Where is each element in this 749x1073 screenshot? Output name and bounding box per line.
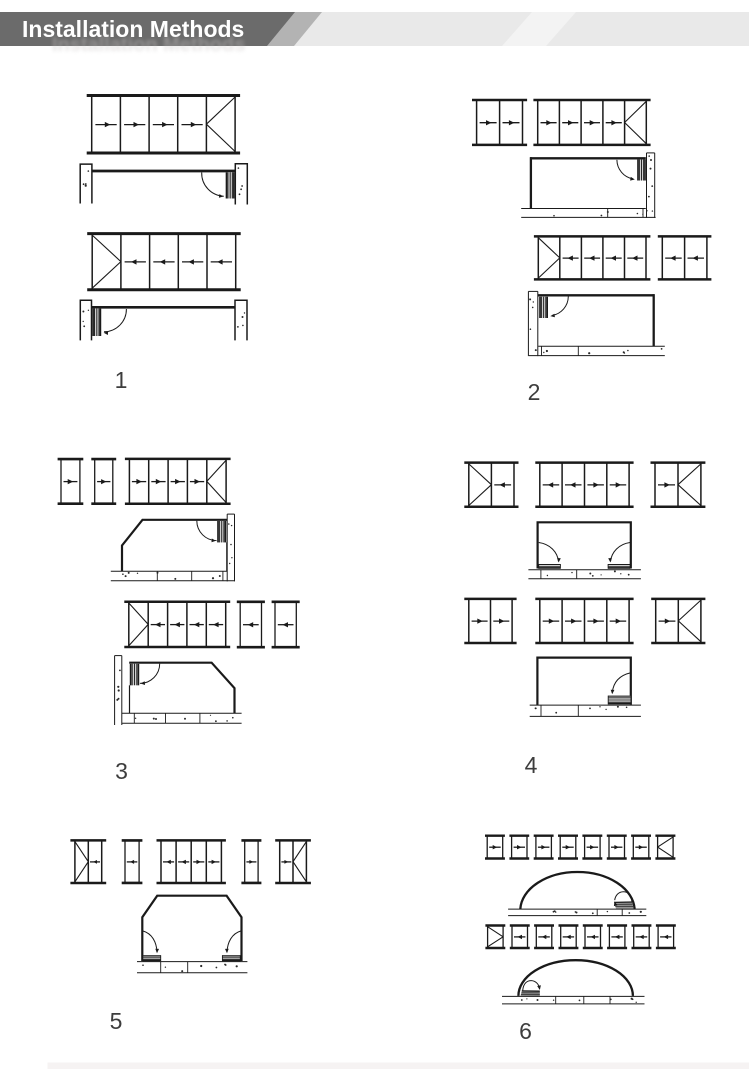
svg-text:2: 2 <box>528 379 541 405</box>
svg-text:3: 3 <box>115 758 128 784</box>
svg-text:Installation Methods: Installation Methods <box>52 34 245 56</box>
svg-text:5: 5 <box>110 1008 123 1034</box>
svg-text:4: 4 <box>525 752 538 778</box>
svg-text:6: 6 <box>519 1018 532 1044</box>
svg-text:1: 1 <box>115 367 128 393</box>
